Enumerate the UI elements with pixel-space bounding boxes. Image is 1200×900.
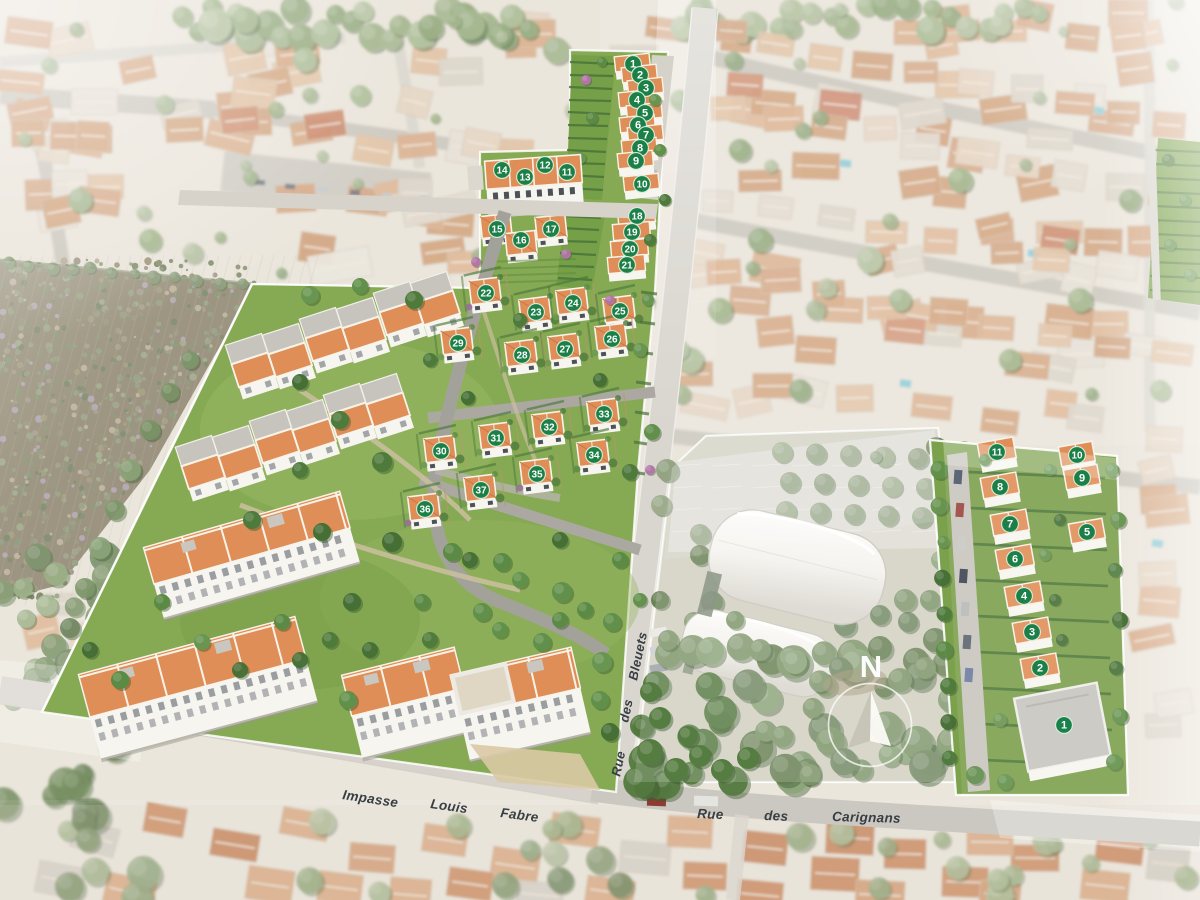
svg-text:23: 23 bbox=[530, 308, 542, 319]
svg-text:10: 10 bbox=[636, 180, 648, 191]
svg-text:18: 18 bbox=[631, 212, 643, 223]
svg-text:22: 22 bbox=[480, 289, 492, 300]
svg-text:9: 9 bbox=[1079, 473, 1085, 485]
svg-text:15: 15 bbox=[491, 225, 503, 236]
svg-text:37: 37 bbox=[475, 486, 487, 497]
svg-text:30: 30 bbox=[435, 447, 447, 458]
svg-text:16: 16 bbox=[515, 236, 527, 247]
svg-text:des: des bbox=[764, 808, 789, 824]
svg-text:5: 5 bbox=[1084, 527, 1090, 539]
svg-text:4: 4 bbox=[634, 95, 641, 107]
svg-text:34: 34 bbox=[588, 451, 600, 462]
svg-text:31: 31 bbox=[490, 434, 502, 445]
svg-text:3: 3 bbox=[643, 83, 649, 95]
svg-text:33: 33 bbox=[598, 410, 610, 421]
svg-text:24: 24 bbox=[567, 299, 579, 310]
svg-text:3: 3 bbox=[1029, 627, 1035, 639]
svg-text:13: 13 bbox=[519, 173, 531, 184]
svg-text:11: 11 bbox=[992, 448, 1003, 459]
svg-text:36: 36 bbox=[419, 505, 431, 516]
svg-text:35: 35 bbox=[531, 470, 543, 481]
svg-text:19: 19 bbox=[626, 228, 638, 239]
svg-text:9: 9 bbox=[633, 156, 639, 168]
svg-text:4: 4 bbox=[1021, 591, 1028, 603]
svg-text:Rue: Rue bbox=[697, 806, 724, 822]
svg-text:25: 25 bbox=[614, 307, 626, 318]
svg-text:7: 7 bbox=[643, 130, 649, 142]
svg-text:Carignans: Carignans bbox=[832, 809, 901, 826]
svg-text:8: 8 bbox=[997, 482, 1003, 494]
svg-text:27: 27 bbox=[559, 345, 571, 356]
svg-text:14: 14 bbox=[496, 166, 508, 177]
svg-text:10: 10 bbox=[1071, 451, 1083, 462]
svg-text:32: 32 bbox=[543, 423, 555, 434]
svg-text:1: 1 bbox=[1061, 720, 1067, 732]
svg-text:20: 20 bbox=[624, 245, 636, 256]
svg-text:26: 26 bbox=[606, 335, 618, 346]
svg-text:28: 28 bbox=[516, 351, 528, 362]
svg-text:29: 29 bbox=[452, 339, 464, 350]
svg-text:17: 17 bbox=[545, 225, 557, 236]
svg-text:N: N bbox=[860, 649, 882, 684]
svg-text:21: 21 bbox=[621, 261, 633, 272]
svg-text:2: 2 bbox=[637, 70, 643, 82]
svg-text:2: 2 bbox=[1037, 663, 1043, 675]
svg-text:11: 11 bbox=[562, 168, 573, 179]
svg-text:12: 12 bbox=[539, 161, 551, 172]
svg-text:7: 7 bbox=[1007, 519, 1013, 531]
svg-text:6: 6 bbox=[1012, 554, 1018, 566]
